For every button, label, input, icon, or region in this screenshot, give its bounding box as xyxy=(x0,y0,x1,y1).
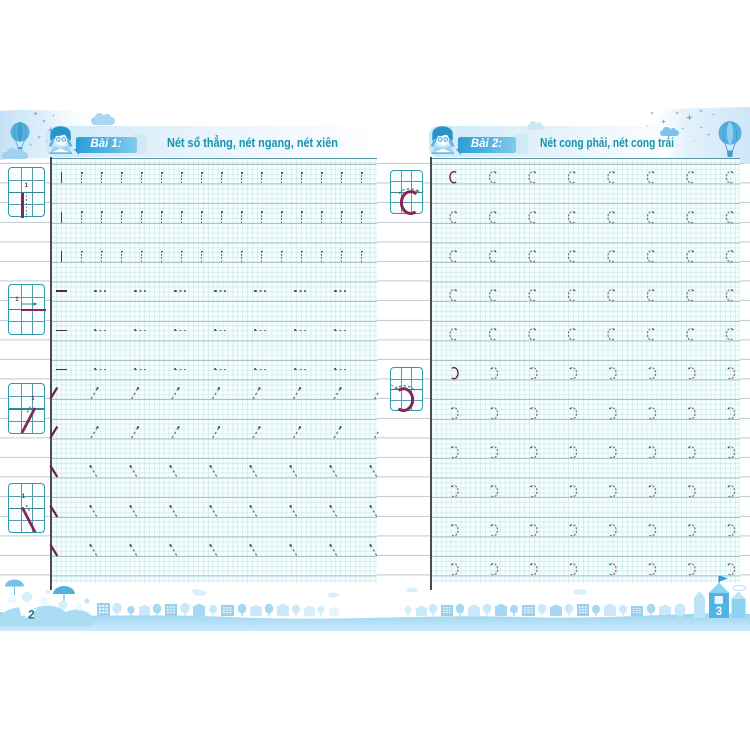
svg-text:2: 2 xyxy=(28,610,34,622)
svg-text:3: 3 xyxy=(716,606,722,618)
